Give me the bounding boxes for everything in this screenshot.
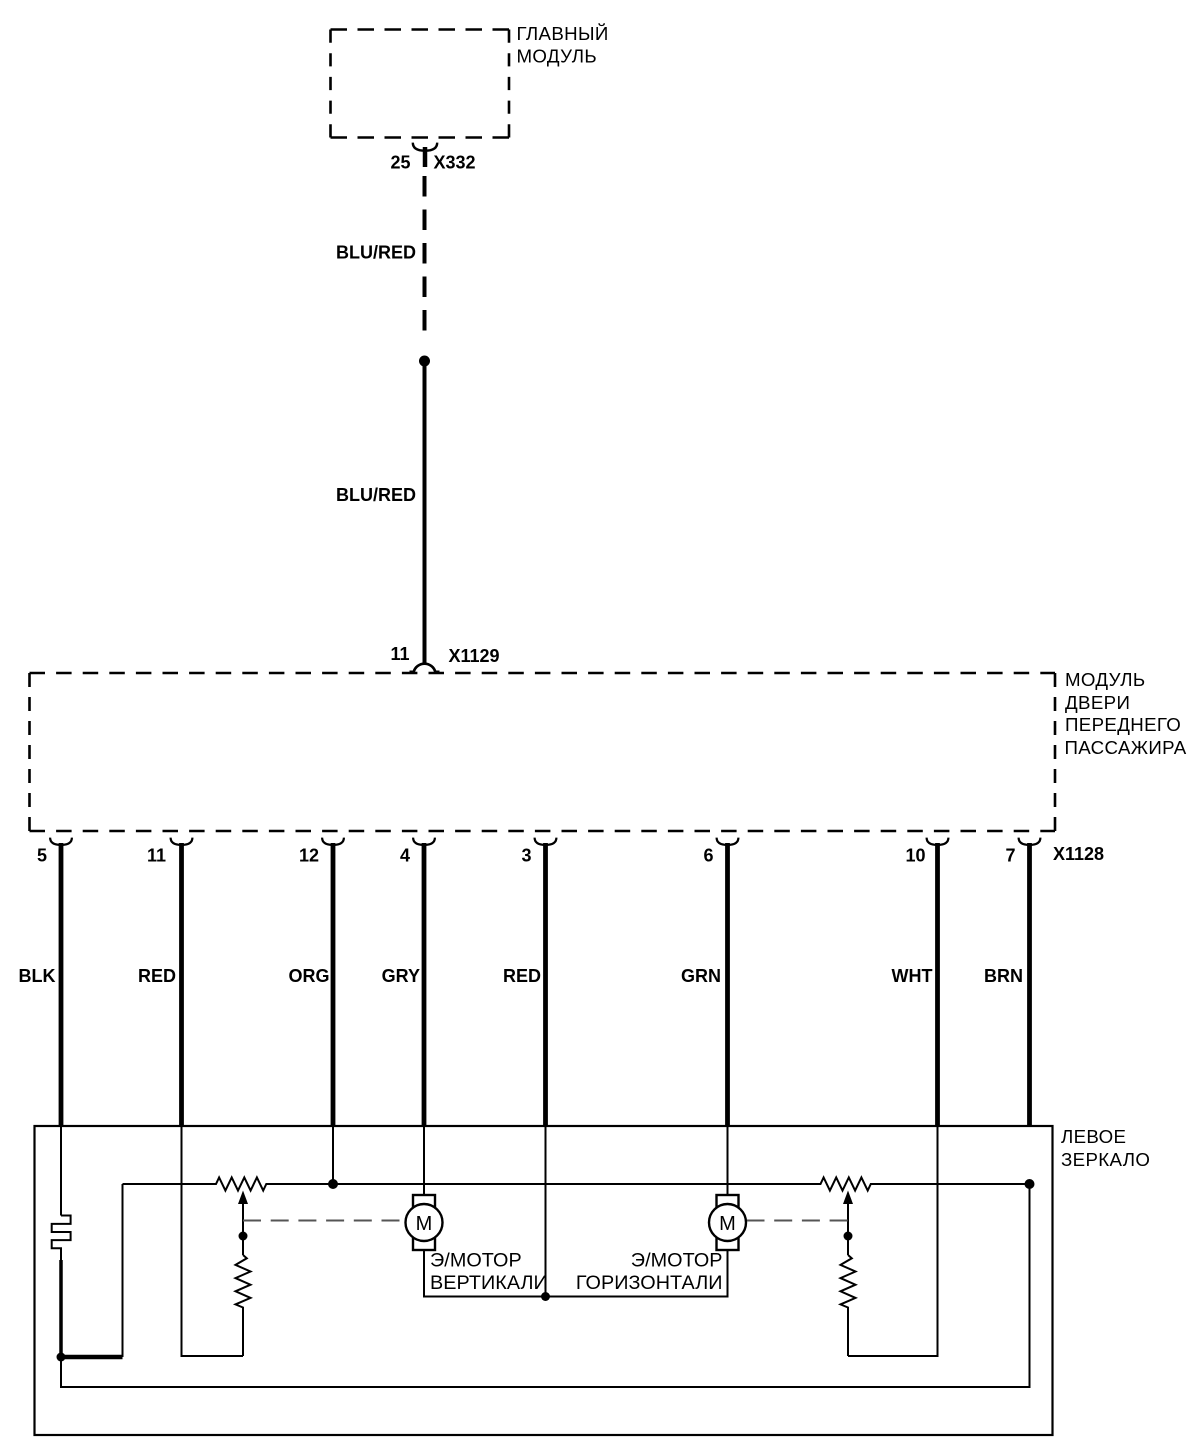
svg-text:RED: RED: [138, 966, 176, 986]
svg-text:WHT: WHT: [892, 966, 933, 986]
svg-text:BLK: BLK: [19, 966, 56, 986]
svg-text:Э/МОТОР: Э/МОТОР: [631, 1250, 723, 1272]
svg-text:5: 5: [37, 846, 47, 866]
svg-text:ПАССАЖИРА: ПАССАЖИРА: [1065, 737, 1187, 758]
svg-text:BLU/RED: BLU/RED: [336, 485, 416, 505]
svg-text:7: 7: [1005, 846, 1015, 866]
svg-text:ЛЕВОЕ: ЛЕВОЕ: [1061, 1126, 1126, 1147]
svg-text:ГЛАВНЫЙ: ГЛАВНЫЙ: [517, 23, 609, 44]
svg-text:M: M: [416, 1213, 433, 1235]
svg-text:M: M: [719, 1213, 736, 1235]
svg-text:ДВЕРИ: ДВЕРИ: [1065, 692, 1130, 713]
svg-text:МОДУЛЬ: МОДУЛЬ: [517, 46, 597, 67]
svg-text:25: 25: [390, 153, 410, 173]
svg-text:ЗЕРКАЛО: ЗЕРКАЛО: [1061, 1149, 1150, 1170]
svg-text:Э/МОТОР: Э/МОТОР: [430, 1250, 522, 1272]
svg-text:11: 11: [390, 644, 409, 664]
svg-text:X1128: X1128: [1053, 844, 1104, 864]
svg-text:ГОРИЗОНТАЛИ: ГОРИЗОНТАЛИ: [576, 1272, 723, 1294]
svg-text:GRY: GRY: [382, 966, 420, 986]
svg-text:МОДУЛЬ: МОДУЛЬ: [1065, 669, 1145, 690]
svg-text:10: 10: [905, 846, 925, 866]
svg-text:12: 12: [299, 846, 319, 866]
svg-text:ВЕРТИКАЛИ: ВЕРТИКАЛИ: [430, 1272, 548, 1294]
svg-text:3: 3: [521, 846, 531, 866]
svg-text:BRN: BRN: [984, 966, 1023, 986]
svg-text:6: 6: [703, 846, 713, 866]
svg-text:GRN: GRN: [681, 966, 721, 986]
svg-text:4: 4: [400, 846, 410, 866]
svg-text:ORG: ORG: [288, 966, 329, 986]
svg-text:BLU/RED: BLU/RED: [336, 243, 416, 263]
svg-text:RED: RED: [503, 966, 541, 986]
svg-text:11: 11: [147, 846, 166, 866]
svg-text:X332: X332: [434, 153, 476, 173]
svg-text:ПЕРЕДНЕГО: ПЕРЕДНЕГО: [1065, 714, 1181, 735]
svg-text:X1129: X1129: [449, 646, 500, 666]
